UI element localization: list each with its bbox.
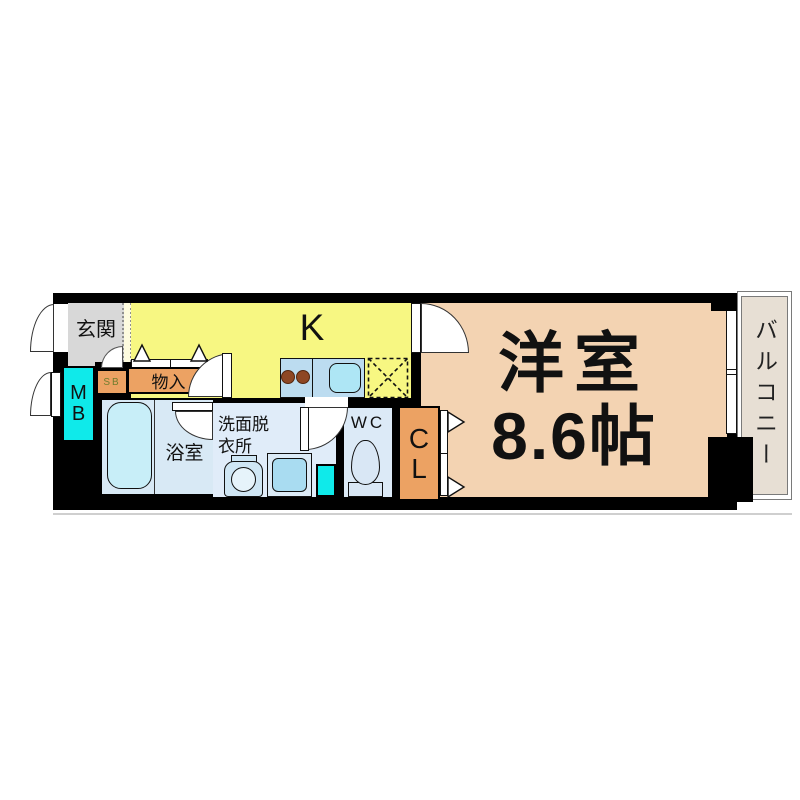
corridor-door-leaf (222, 353, 232, 398)
storage-label: 物入 (152, 368, 186, 393)
meter-box-letter-m: M (70, 383, 87, 404)
pipe-space (316, 464, 336, 497)
kitchen-label-wrap: K (286, 306, 338, 350)
shoe-box: SB (97, 370, 127, 394)
scan-shadow-line (53, 513, 792, 515)
entrance-door-opening (54, 304, 68, 352)
shoe-box-label: SB (103, 377, 120, 388)
window-meeting-stile (727, 369, 736, 370)
wc-label: WC (351, 413, 385, 433)
washroom-door-opening (305, 397, 348, 407)
western-room-label-wrap: 洋室 8.6帖 (421, 303, 727, 497)
washroom-label-wrap: 洗面脱 衣所 (218, 414, 298, 458)
wash-basin-bowl (231, 467, 256, 492)
western-room-label-line2: 8.6帖 (491, 400, 657, 473)
meter-box-letter-b: B (72, 404, 85, 425)
kitchen-sink-icon (329, 363, 361, 393)
gas-burner-icon (296, 370, 310, 384)
bathroom-label-wrap: 浴室 (156, 438, 213, 464)
gas-burner-icon (281, 370, 295, 384)
wc-label-wrap: WC (344, 412, 392, 434)
western-room-label-line1: 洋室 (498, 327, 650, 400)
bathroom-door-leaf (172, 402, 213, 411)
bathroom-label: 浴室 (165, 438, 203, 465)
western-room-door-leaf (411, 303, 421, 353)
genkan-label-wrap: 玄関 (68, 313, 124, 341)
kitchen-label: K (300, 307, 325, 349)
meter-box: M B (62, 366, 95, 442)
genkan-label: 玄関 (76, 313, 116, 342)
washroom-label-line2: 衣所 (218, 436, 298, 458)
storage-door-divider (170, 360, 171, 367)
meter-box-door-swing-icon (30, 372, 51, 416)
meter-box-door-leaf (51, 372, 61, 417)
washroom-label-line1: 洗面脱 (218, 414, 298, 436)
sliding-window-icon (726, 310, 737, 434)
window-meeting-stile (727, 374, 736, 375)
washroom-door-leaf (300, 407, 309, 451)
floorplan-image: バルコニー M B SB 物入 浴室 (0, 0, 800, 800)
entrance-door-swing-icon (30, 304, 54, 352)
bathtub-icon (107, 402, 152, 489)
bathroom-divider (154, 400, 155, 494)
washing-machine-icon (272, 458, 307, 492)
toilet-bowl-icon (351, 440, 380, 485)
counter-divider (312, 359, 313, 397)
